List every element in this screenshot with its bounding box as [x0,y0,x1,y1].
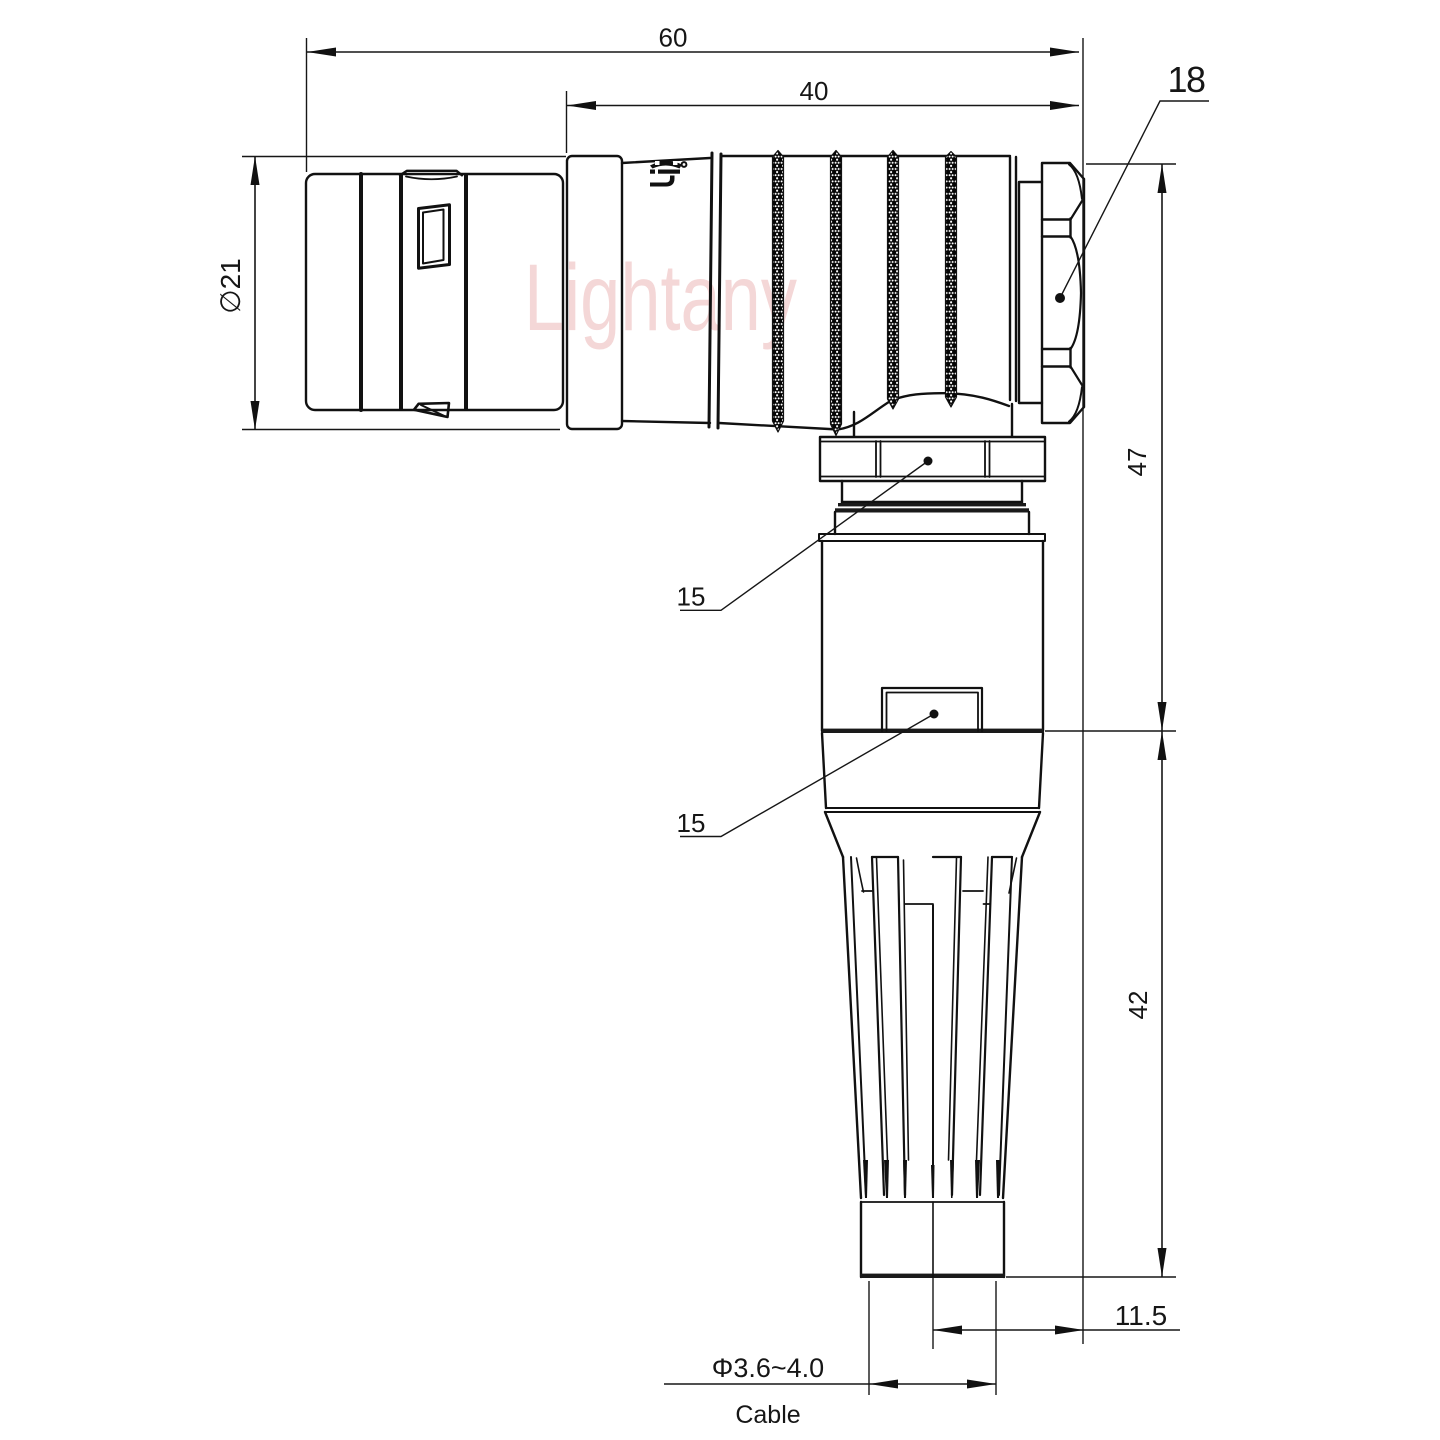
svg-text:15: 15 [677,808,706,838]
svg-text:18: 18 [1167,59,1205,100]
svg-text:47: 47 [1122,448,1152,477]
svg-text:40: 40 [800,76,829,106]
svg-text:Lightany: Lightany [524,244,798,350]
svg-text:42: 42 [1123,991,1153,1020]
svg-text:∅21: ∅21 [215,258,246,314]
svg-text:Φ3.6~4.0: Φ3.6~4.0 [712,1353,824,1383]
svg-text:11.5: 11.5 [1115,1300,1167,1331]
svg-text:Cable: Cable [735,1401,800,1429]
svg-text:60: 60 [659,23,688,53]
svg-text:15: 15 [677,582,706,612]
